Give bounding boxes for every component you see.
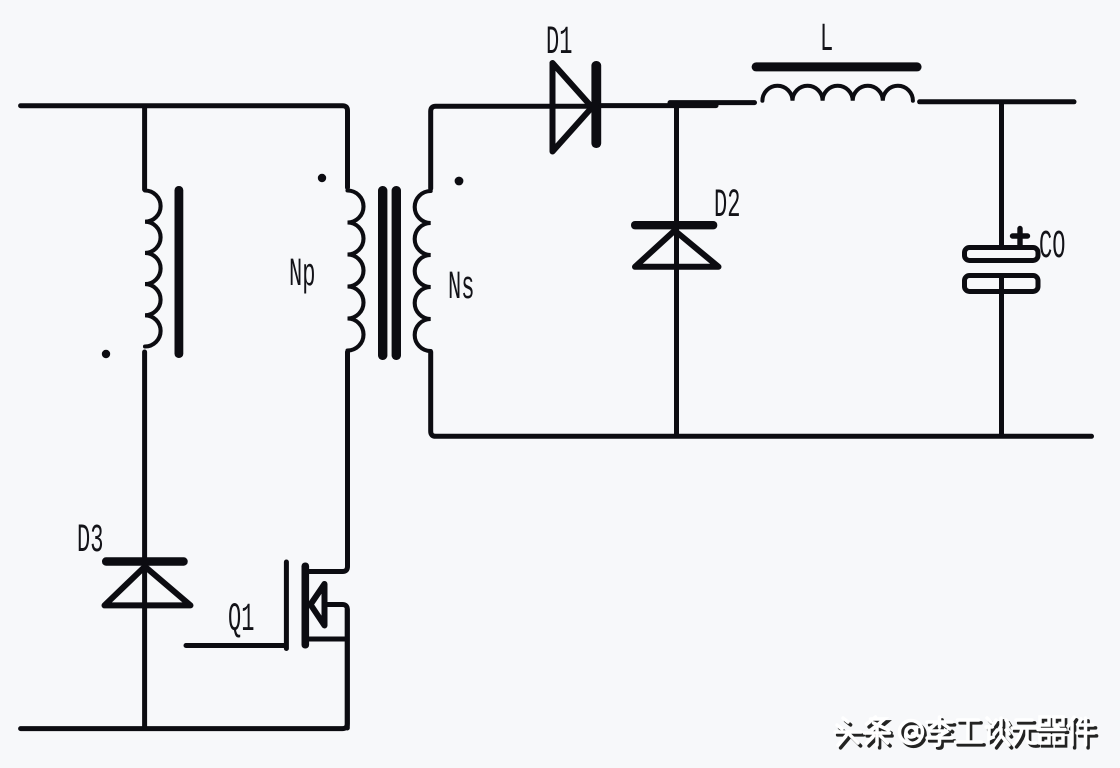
svg-text:D2: D2 (714, 183, 740, 229)
svg-text:Np: Np (289, 252, 315, 298)
svg-text:CO: CO (1039, 224, 1065, 270)
svg-text:D3: D3 (77, 518, 103, 564)
svg-text:D1: D1 (546, 20, 572, 66)
svg-text:Ns: Ns (448, 265, 474, 311)
svg-text:Q1: Q1 (228, 597, 254, 643)
svg-text:L: L (820, 17, 833, 63)
